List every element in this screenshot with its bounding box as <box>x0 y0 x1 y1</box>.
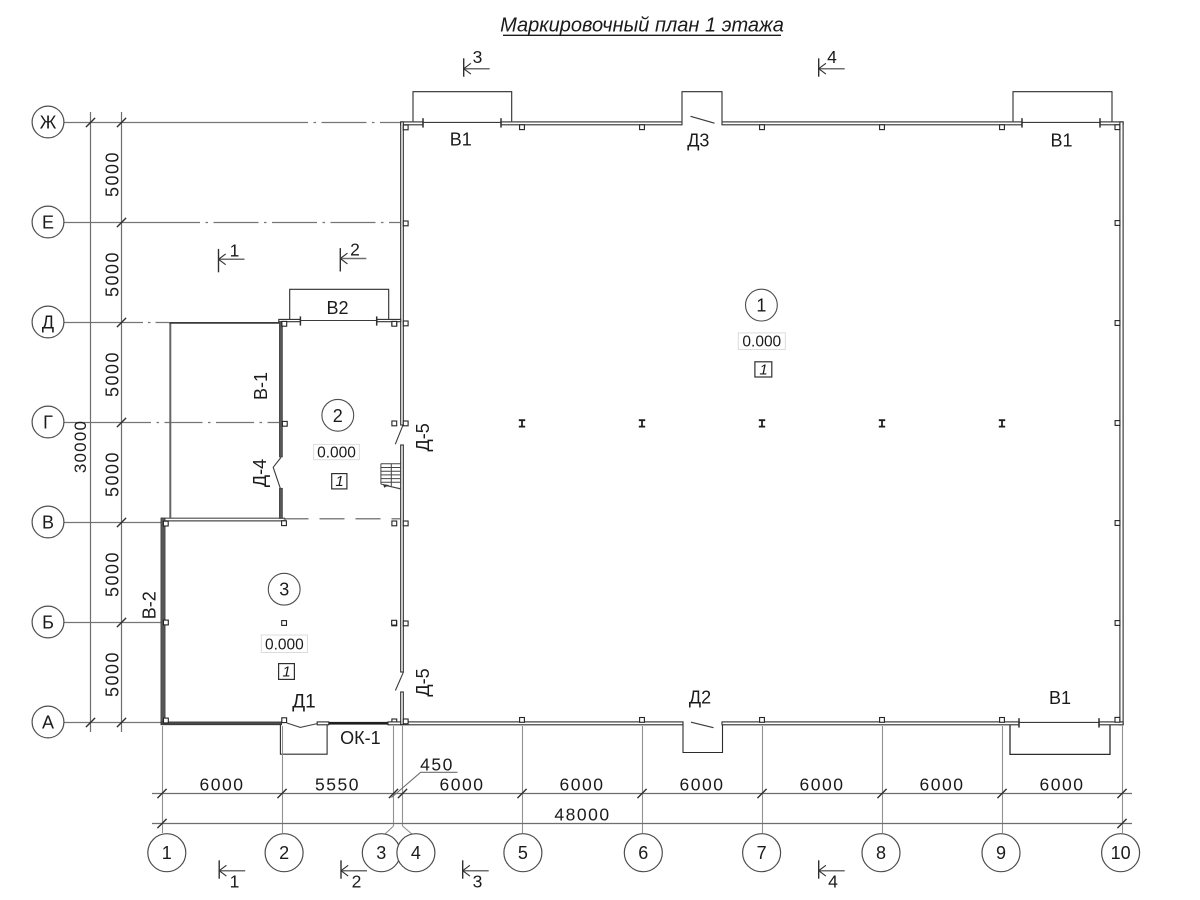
svg-text:30000: 30000 <box>71 420 90 473</box>
svg-text:Д1: Д1 <box>292 692 315 713</box>
svg-text:Д-5: Д-5 <box>413 423 433 451</box>
svg-text:8: 8 <box>876 843 886 863</box>
svg-text:3: 3 <box>376 843 386 863</box>
svg-text:5000: 5000 <box>103 351 123 397</box>
svg-text:Д: Д <box>42 312 54 332</box>
svg-text:5000: 5000 <box>103 451 123 497</box>
svg-text:ОК-1: ОК-1 <box>340 728 381 748</box>
svg-text:5000: 5000 <box>103 551 123 597</box>
svg-text:0.000: 0.000 <box>742 334 781 351</box>
svg-text:5550: 5550 <box>315 775 360 795</box>
svg-text:6000: 6000 <box>920 775 965 795</box>
svg-text:3: 3 <box>473 872 483 892</box>
svg-text:Е: Е <box>42 212 54 232</box>
svg-text:1: 1 <box>756 296 766 316</box>
svg-text:1: 1 <box>230 241 240 261</box>
svg-text:5000: 5000 <box>103 151 123 197</box>
svg-text:6000: 6000 <box>200 775 245 795</box>
svg-text:В-2: В-2 <box>140 591 160 619</box>
svg-text:1: 1 <box>162 843 172 863</box>
svg-text:9: 9 <box>996 843 1006 863</box>
svg-text:В1: В1 <box>1049 688 1071 708</box>
svg-text:1: 1 <box>335 473 343 490</box>
svg-text:4: 4 <box>411 843 421 863</box>
svg-text:Маркировочный план 1 этажа: Маркировочный план 1 этажа <box>500 15 784 37</box>
svg-text:Б: Б <box>42 612 54 632</box>
svg-text:48000: 48000 <box>554 805 610 825</box>
svg-text:1: 1 <box>282 664 290 681</box>
svg-text:4: 4 <box>827 47 837 67</box>
svg-text:В: В <box>42 512 54 532</box>
svg-text:450: 450 <box>420 754 454 774</box>
svg-text:Д2: Д2 <box>689 688 711 708</box>
svg-text:5: 5 <box>518 843 528 863</box>
svg-text:6000: 6000 <box>440 775 485 795</box>
svg-text:6000: 6000 <box>1040 775 1085 795</box>
svg-text:6000: 6000 <box>680 775 725 795</box>
svg-text:В2: В2 <box>326 298 348 318</box>
svg-text:4: 4 <box>828 872 838 892</box>
svg-text:5000: 5000 <box>103 251 123 297</box>
svg-text:Д-5: Д-5 <box>413 668 433 696</box>
svg-text:0.000: 0.000 <box>317 444 356 461</box>
svg-text:2: 2 <box>352 872 362 892</box>
svg-text:7: 7 <box>757 843 767 863</box>
svg-text:В-1: В-1 <box>251 372 271 400</box>
svg-text:0.000: 0.000 <box>265 636 304 653</box>
svg-text:Д3: Д3 <box>687 130 709 150</box>
svg-text:Д-4: Д-4 <box>250 459 270 487</box>
svg-text:2: 2 <box>350 240 360 260</box>
svg-text:А: А <box>42 712 54 732</box>
svg-text:2: 2 <box>279 843 289 863</box>
svg-text:Ж: Ж <box>40 112 57 132</box>
svg-text:2: 2 <box>333 406 343 426</box>
svg-text:10: 10 <box>1111 843 1131 863</box>
svg-text:В1: В1 <box>1050 130 1072 150</box>
svg-text:1: 1 <box>759 361 767 378</box>
svg-text:6000: 6000 <box>560 775 605 795</box>
svg-text:6: 6 <box>638 843 648 863</box>
svg-text:6000: 6000 <box>800 775 845 795</box>
svg-text:1: 1 <box>230 872 240 892</box>
svg-text:5000: 5000 <box>103 651 123 697</box>
svg-text:3: 3 <box>279 580 289 600</box>
svg-text:Г: Г <box>43 412 53 432</box>
svg-text:3: 3 <box>473 47 483 67</box>
svg-text:В1: В1 <box>450 129 472 149</box>
